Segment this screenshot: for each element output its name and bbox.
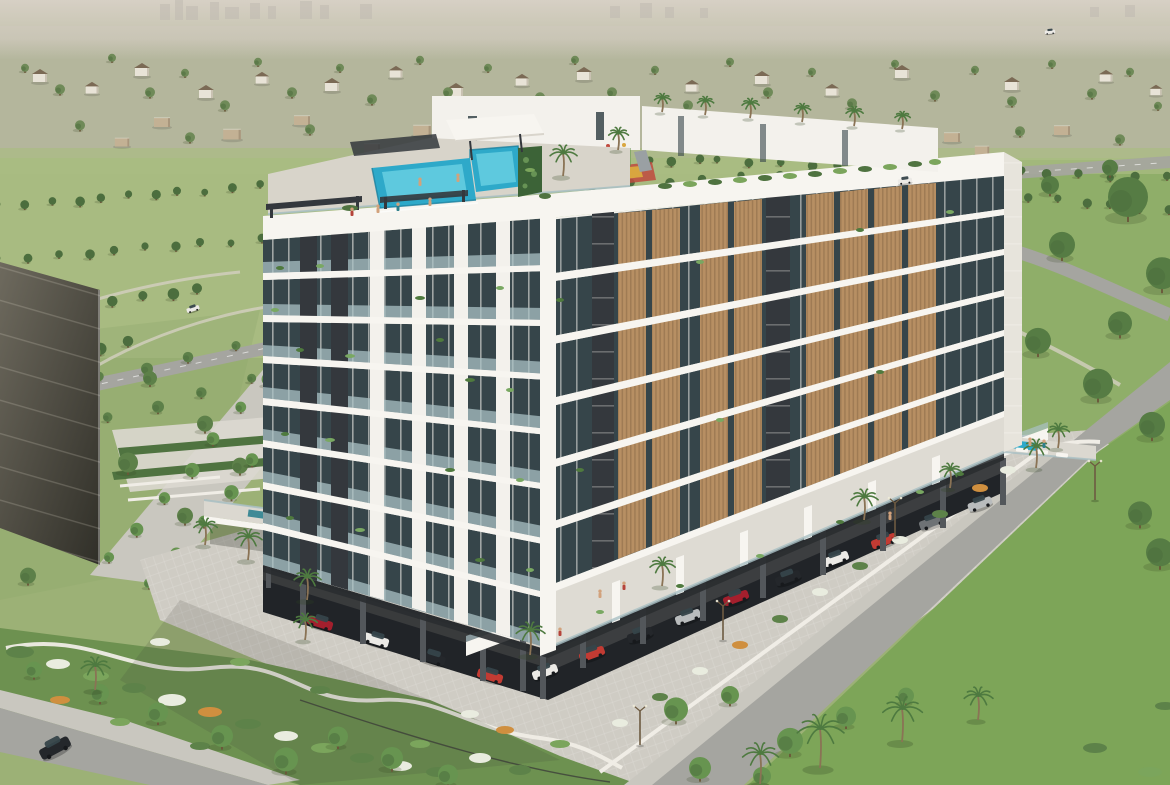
person [350,208,353,217]
person [1028,438,1031,447]
tree-inner [172,244,177,249]
suburban-villa [942,132,962,144]
tree-inner [258,236,263,241]
tree-inner [193,287,199,293]
tree-inner [56,88,62,94]
shrub [772,615,788,623]
palm-shadow [802,765,833,774]
house-side [211,90,213,98]
tree-inner [142,245,146,249]
aerial-render-stage [0,0,1170,785]
villa-side [958,133,960,142]
shrub [198,707,222,717]
shrub [658,183,672,189]
green-wall-leaf-3 [523,184,528,189]
house-side [1017,82,1019,90]
house-side [147,68,149,76]
tree-inner [149,709,160,720]
palm-trunk [248,538,249,561]
tree-inner [754,773,764,783]
person-body [429,201,432,206]
distant-tower [225,7,239,19]
tree-inner [1116,138,1122,144]
person-head [888,512,891,515]
palm-shadow [518,654,537,660]
person [456,174,459,183]
tree-inner [246,457,253,464]
distant-tower [160,4,170,20]
corner-pier [540,194,556,656]
tree-inner [181,71,185,75]
shrub [296,348,304,352]
tree-inner [484,66,488,70]
shrub [732,641,748,649]
tree-inner [228,186,233,191]
person-head [558,628,561,631]
villa-body [294,116,310,125]
person [598,590,601,599]
person-head [396,203,399,206]
person-head [428,198,431,201]
shrub [676,584,684,588]
house-side [267,76,269,83]
shrub [310,686,330,694]
distant-tower [300,1,312,19]
house-side [907,70,909,78]
palm-trunk [95,666,96,690]
house-side [767,76,769,84]
tree-inner [27,667,36,676]
tree-inner [104,555,110,561]
tree-inner [225,490,233,498]
shrub [46,659,70,669]
palm-trunk [854,112,855,126]
tree-inner [1083,202,1088,207]
tree-inner [1165,208,1170,213]
tree-inner [232,344,237,349]
tree-inner [777,161,781,165]
shrub [281,432,289,436]
shrub [858,166,872,172]
palm-trunk [978,696,979,720]
tree-inner [110,249,115,254]
tree-inner [108,299,114,305]
shrub [683,181,697,187]
tree-inner [125,193,129,197]
suburban-villa [113,138,131,149]
palm-shadow [941,488,955,492]
distant-tower [610,6,620,18]
roof-slit-1 [678,116,684,156]
tree-inner [1110,190,1132,212]
palm-trunk [618,134,619,151]
tree-inner [329,733,340,744]
tree-inner [608,91,614,97]
distant-tower [360,4,372,19]
tree-inner [103,415,108,420]
shrub [833,168,847,174]
shrub [445,468,455,472]
shrub [1138,767,1162,777]
person-head [622,582,625,585]
suburban-villa [221,129,243,143]
distant-tower [175,0,183,20]
tree-inner [275,755,288,768]
tree-inner [139,294,144,299]
palm-shadow [1049,448,1063,452]
villa-parapet [223,129,241,130]
tree-inner [212,732,224,744]
tree-inner [207,436,214,443]
lamp-shadow [719,640,727,642]
palm-shadow [609,150,622,154]
tree-inner [1126,70,1130,74]
palm-trunk [205,526,206,546]
palm-trunk [662,99,663,113]
glass-building-floors [0,262,100,565]
shrub [496,726,514,734]
house-side [401,70,403,77]
villa-body [944,133,960,142]
tree-inner [778,736,792,750]
shrub [316,264,324,268]
house-body [1100,74,1113,81]
person [418,178,421,187]
palm-shadow [846,126,857,129]
house-side [97,86,99,93]
villa-parapet [1054,125,1070,126]
person-body [559,631,562,636]
tree-inner [21,203,26,208]
shrub [50,696,70,704]
person-head [1028,438,1031,441]
person-head [418,178,421,181]
house-side [697,84,699,91]
shrub [916,490,924,494]
palm-trunk [902,116,903,129]
tree-inner [306,128,312,134]
tree-inner [1163,174,1167,178]
shrub [465,378,475,382]
lamp-head [645,705,648,708]
tree-inner [1075,172,1080,177]
tree-inner [97,196,102,201]
distant-tower [320,5,329,19]
tree-inner [159,496,165,502]
shrub [556,298,564,302]
playground-ball-2 [622,143,626,147]
person [888,512,891,521]
shrub [274,731,298,741]
shrub [946,210,954,214]
shrub [908,161,922,167]
person-body [377,208,380,213]
tree-inner [651,68,655,72]
shrub [956,472,964,476]
shrub [276,266,284,270]
shrub [122,683,146,693]
distant-tower [640,3,652,18]
shrub [342,205,358,211]
shrub [355,528,365,532]
shrub [692,667,708,675]
tree-inner [1103,165,1112,174]
distant-tower [1090,7,1099,17]
tree-inner [178,513,187,522]
palm-trunk [950,470,951,488]
shrub [812,588,828,596]
shrub [539,193,551,199]
villa-side [308,116,310,125]
shrub [526,568,534,572]
palm-trunk [563,154,564,177]
distant-tower [1125,5,1135,17]
green-wall-leaf-2 [531,171,537,177]
palm-shadow [698,115,709,118]
suburban-villa [152,117,172,129]
tree-inner [1024,196,1029,201]
tree-inner [368,98,374,104]
aerial-render [0,0,1170,785]
shrub [6,646,34,658]
tree-inner [221,104,227,110]
tree-inner [439,771,450,782]
tree-inner [202,191,206,195]
person-head [376,205,379,208]
palm-trunk [305,621,306,641]
tree-inner [1154,104,1158,108]
house-side [527,78,529,85]
distant-tower [210,2,219,20]
shrub [345,354,355,358]
distant-tower [186,6,198,20]
house-side [837,88,839,95]
shrub [733,177,747,183]
pool-wing-light [476,151,516,186]
tree-inner [416,58,420,62]
distant-tower [268,6,276,19]
shrub [852,562,868,570]
shrub [652,693,668,701]
palm-trunk [760,754,761,784]
lamp-shadow [891,537,899,539]
shrub [525,168,535,172]
shrub [696,260,704,264]
shrub [758,175,772,181]
tree-inner [254,60,258,64]
palm-shadow [742,118,753,121]
person-body [351,211,354,216]
shrub [235,719,261,729]
shrub [1083,743,1107,753]
tree-inner [24,257,29,262]
lamp-head [716,600,719,603]
right-end-floors [1004,152,1022,452]
shrub [150,638,170,646]
palm-trunk [864,498,865,521]
shrub [350,753,374,763]
distant-tower [665,7,674,18]
tree-inner [168,292,174,298]
tree-inner [1109,319,1122,332]
tree-inner [131,527,138,534]
palm-trunk [662,565,663,586]
villa-side [987,146,989,154]
shrub [716,418,724,422]
tree-inner [146,91,152,97]
person [428,198,431,207]
person [396,203,399,212]
tree-inner [336,66,340,70]
tree-inner [49,200,53,204]
shrub [550,740,570,748]
tree-inner [808,70,812,74]
house-body [895,70,909,78]
shrub [836,520,844,524]
shrub [883,164,897,170]
tree-inner [1016,130,1022,136]
shrub [410,740,430,748]
palm-shadow [895,129,905,132]
tree-inner [257,183,261,187]
house-body [1150,89,1161,95]
house-body [256,76,269,83]
tree-inner [1088,92,1094,98]
tree-inner [1148,268,1166,286]
shrub [783,173,797,179]
person-body [599,593,602,598]
house-body [86,86,99,93]
tree-inner [123,339,129,345]
distant-tower [250,3,260,19]
shrub [708,179,722,185]
tree-inner [198,421,207,430]
palm-shadow [655,112,666,115]
tree-inner [714,158,718,162]
villa-parapet [154,117,170,118]
villa-parapet [413,125,431,126]
villa-body [413,126,431,136]
tree-inner [1042,182,1052,192]
tree-inner [152,193,157,198]
tree-inner [236,405,242,411]
palm-trunk [307,578,308,601]
palm-trunk [1036,447,1037,468]
house-body [135,68,149,76]
person-head [1042,440,1045,443]
lamp-head [1088,460,1091,463]
palm-shadow [295,640,311,645]
adjacent-glass-building [0,262,100,565]
penthouse-door-2 [596,112,604,140]
shrub [475,558,485,562]
person [376,205,379,214]
tree-inner [288,91,294,97]
villa-body [154,118,170,127]
villa-side [429,126,431,136]
palm-shadow [83,689,102,695]
tree-inner [248,377,253,382]
house-body [516,78,529,85]
lamp-head [1100,460,1103,463]
house-side [1111,74,1113,81]
tree-inner [228,242,232,246]
palm-trunk [705,102,706,116]
tree-inner [144,376,152,384]
villa-body [975,146,989,154]
shrub [415,296,425,300]
palm-shadow [853,519,871,524]
tree-inner [971,68,975,72]
tree-inner [1026,336,1040,350]
house-body [199,90,213,98]
palm-shadow [552,175,570,180]
tree-inner [108,56,112,60]
villa-body [115,138,129,146]
house-side [1160,89,1162,95]
person-body [1029,441,1032,446]
villa-parapet [115,138,129,139]
lamp-head [728,600,731,603]
tree-inner [76,200,81,205]
tree-inner [1129,509,1142,522]
tree-inner [1140,420,1154,434]
house-side [45,74,47,82]
tree-inner [1050,240,1064,254]
palm-shadow [237,559,255,564]
shrub [325,438,335,442]
shrub [612,719,628,727]
lamp-shadow [636,745,644,747]
house-body [826,88,839,95]
palm-shadow [195,545,211,550]
shrub [932,510,948,518]
palm-trunk [902,709,903,742]
villa-body [1054,126,1070,135]
lamp-head [900,497,903,500]
shrub [1000,466,1016,474]
person-body [623,585,626,590]
shrub [756,554,764,558]
shrub [461,710,479,718]
roof-slit-2 [760,124,766,162]
villa-side [239,130,241,140]
tree-inner [233,463,242,472]
palm-shadow [1026,467,1043,472]
shrub [469,753,491,763]
house-body [755,76,769,84]
villa-side [1068,126,1070,135]
shrub [576,468,584,472]
person-head [456,174,459,177]
green-wall-leaf-1 [523,157,529,163]
person [1042,440,1045,449]
tree-inner [665,705,678,718]
palm-shadow [795,122,806,125]
house-body [325,83,339,91]
lamp-head [888,497,891,500]
palm-shadow [296,599,314,604]
house-body [33,74,47,82]
tree-inner [186,136,192,142]
shrub [496,286,504,290]
shrub [929,159,941,165]
person [558,628,561,637]
tree-inner [891,62,895,66]
shrub [596,610,604,614]
person-head [350,208,353,211]
shrub [509,765,531,775]
